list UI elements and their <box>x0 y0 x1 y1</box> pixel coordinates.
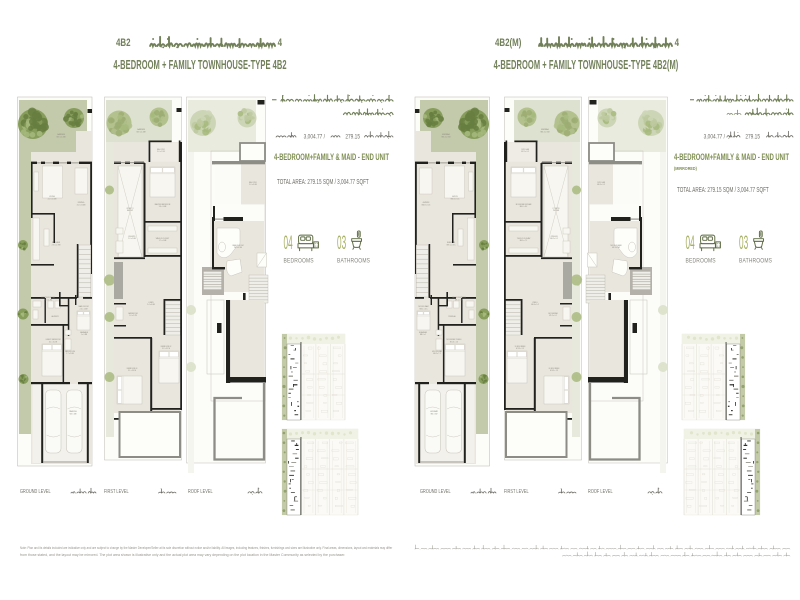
svg-text:W0 x 4.5M: W0 x 4.5M <box>234 247 242 249</box>
svg-text:BELOW: BELOW <box>553 210 559 212</box>
svg-text:(MIRRORED): (MIRRORED) <box>674 165 697 171</box>
svg-text:04: 04 <box>686 232 695 254</box>
svg-text:4: 4 <box>675 37 680 50</box>
svg-text:LAUNDRY: LAUNDRY <box>51 315 59 318</box>
svg-text:BELOW: BELOW <box>127 210 133 212</box>
svg-text:W0 x 4.5M: W0 x 4.5M <box>57 136 66 138</box>
svg-text:W0 x 4.5M: W0 x 4.5M <box>612 247 620 249</box>
svg-text:3,004.77 /: 3,004.77 / <box>704 134 726 141</box>
svg-text:1.7 x 4.4M: 1.7 x 4.4M <box>519 240 527 242</box>
svg-text:GROUND LEVEL: GROUND LEVEL <box>420 488 451 495</box>
svg-text:3.1 x 3.0 M: 3.1 x 3.0 M <box>550 370 558 372</box>
svg-text:BATHROOMS: BATHROOMS <box>337 258 370 265</box>
svg-text:W0 x 4.5M: W0 x 4.5M <box>441 136 450 138</box>
svg-text:1.7 x 2.6M: 1.7 x 2.6M <box>66 353 74 355</box>
svg-text:W0 x 4.5M: W0 x 4.5M <box>540 131 549 133</box>
svg-text:3.0 x 3.0M: 3.0 x 3.0M <box>249 184 257 186</box>
svg-text:4.0 x 4.5M: 4.0 x 4.5M <box>48 198 57 200</box>
svg-text:3,004.77 /: 3,004.77 / <box>304 134 326 141</box>
svg-text:4B2: 4B2 <box>116 37 131 50</box>
svg-text:2.8 x 2.7M: 2.8 x 2.7M <box>52 244 61 246</box>
svg-text:4-BEDROOM+FAMILY & MAID - END: 4-BEDROOM+FAMILY & MAID - END UNIT <box>274 152 389 163</box>
svg-text:03: 03 <box>739 232 748 254</box>
svg-text:04: 04 <box>284 232 293 254</box>
svg-text:3.0 x 3.0M: 3.0 x 3.0M <box>597 184 605 186</box>
svg-text:from those stated, and the lay: from those stated, and the layout may be… <box>20 553 345 557</box>
svg-text:W0 x 6M: W0 x 6M <box>70 413 77 415</box>
svg-text:3.1 x 3.0 M: 3.1 x 3.0 M <box>128 370 136 372</box>
svg-text:3.0 x 3.6M: 3.0 x 3.6M <box>421 204 430 206</box>
svg-text:2.0 x 2.6M: 2.0 x 2.6M <box>550 238 558 240</box>
svg-text:2.4 x 4.0M: 2.4 x 4.0M <box>531 304 539 306</box>
svg-text:W0 x 4.5M: W0 x 4.5M <box>137 131 146 133</box>
svg-text:4-BEDROOM + FAMILY TOWNHOUSE-T: 4-BEDROOM + FAMILY TOWNHOUSE-TYPE 4B2(M) <box>494 58 679 73</box>
svg-text:ROOF LEVEL: ROOF LEVEL <box>588 488 613 495</box>
svg-text:3.2 x 3.1 M: 3.2 x 3.1 M <box>162 348 170 350</box>
svg-text:TOTAL AREA: 279.15 SQM / 3,004: TOTAL AREA: 279.15 SQM / 3,004.77 SQFT <box>277 179 369 186</box>
svg-text:1 x 0.8M: 1 x 0.8M <box>81 334 88 336</box>
svg-text:W0 x 6M: W0 x 6M <box>430 413 437 415</box>
svg-text:BEDROOMS: BEDROOMS <box>686 258 716 265</box>
svg-text:3.1 x 3.0 M: 3.1 x 3.0 M <box>49 341 58 343</box>
svg-text:3.0 x 1.1M: 3.0 x 1.1M <box>521 151 529 153</box>
svg-text:BATHROOMS: BATHROOMS <box>739 258 772 265</box>
svg-text:Note: Plan and its details inc: Note: Plan and its details included are … <box>20 546 393 550</box>
svg-text:4.0 x 4.5M: 4.0 x 4.5M <box>450 198 459 200</box>
svg-text:3.2 x 3.1 M: 3.2 x 3.1 M <box>516 348 524 350</box>
svg-text:2.0 x 2.5M: 2.0 x 2.5M <box>419 308 427 310</box>
svg-text:1.7 x 4.4M: 1.7 x 4.4M <box>159 240 167 242</box>
svg-text:3.8 x 3.6M: 3.8 x 3.6M <box>159 206 167 208</box>
svg-text:2.0 x 2.5M: 2.0 x 2.5M <box>80 308 88 310</box>
svg-text:FIRST LEVEL: FIRST LEVEL <box>104 488 129 495</box>
svg-text:1.6 x 2.7M: 1.6 x 2.7M <box>549 315 557 317</box>
svg-text:4-BEDROOM+FAMILY & MAID - END: 4-BEDROOM+FAMILY & MAID - END UNIT <box>674 152 789 163</box>
svg-text:LAUNDRY: LAUNDRY <box>447 315 455 318</box>
svg-text:3.0 x 1.1M: 3.0 x 1.1M <box>157 151 165 153</box>
svg-text:4-BEDROOM + FAMILY TOWNHOUSE-T: 4-BEDROOM + FAMILY TOWNHOUSE-TYPE 4B2 <box>113 58 286 73</box>
svg-text:2.4 x 4.0M: 2.4 x 4.0M <box>147 304 155 306</box>
svg-text:279.15: 279.15 <box>745 134 760 141</box>
svg-text:3.8 x 3.6M: 3.8 x 3.6M <box>519 206 527 208</box>
svg-text:2.0 x 2.6M: 2.0 x 2.6M <box>128 238 136 240</box>
svg-text:279.15: 279.15 <box>345 134 360 141</box>
svg-text:GROUND LEVEL: GROUND LEVEL <box>20 488 51 495</box>
svg-text:FIRST LEVEL: FIRST LEVEL <box>504 488 529 495</box>
svg-text:1.7 x 2.6M: 1.7 x 2.6M <box>433 353 441 355</box>
svg-text:3.0 x 3.6M: 3.0 x 3.6M <box>77 204 86 206</box>
svg-text:ROOF LEVEL: ROOF LEVEL <box>188 488 213 495</box>
svg-text:TOTAL AREA: 279.15 SQM / 3,004: TOTAL AREA: 279.15 SQM / 3,004.77 SQFT <box>677 187 769 194</box>
svg-text:3.1 x 3.0 M: 3.1 x 3.0 M <box>449 341 458 343</box>
svg-text:03: 03 <box>337 232 346 254</box>
svg-text:2.8 x 2.7M: 2.8 x 2.7M <box>446 244 455 246</box>
svg-text:1 x 0.8M: 1 x 0.8M <box>419 334 426 336</box>
svg-text:1.6 x 2.7M: 1.6 x 2.7M <box>129 315 137 317</box>
svg-text:BEDROOMS: BEDROOMS <box>284 258 314 265</box>
svg-text:4: 4 <box>278 37 283 50</box>
svg-text:4B2(M): 4B2(M) <box>495 37 521 50</box>
